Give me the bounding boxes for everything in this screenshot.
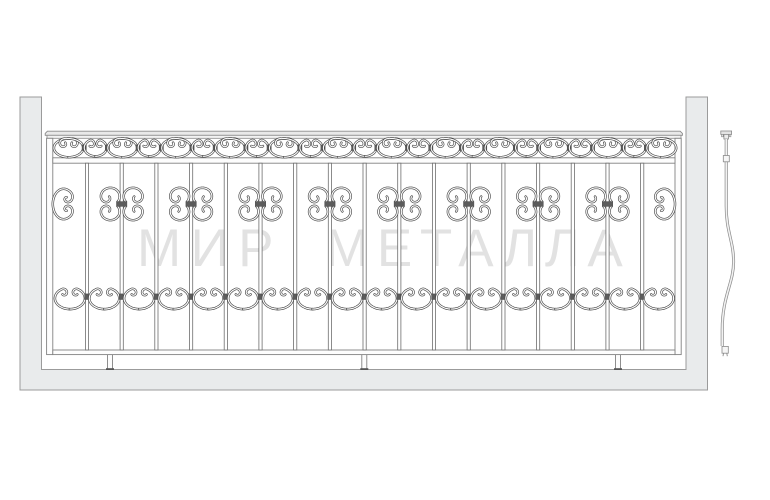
svg-text:МЕТАЛЛА: МЕТАЛЛА — [325, 219, 630, 278]
